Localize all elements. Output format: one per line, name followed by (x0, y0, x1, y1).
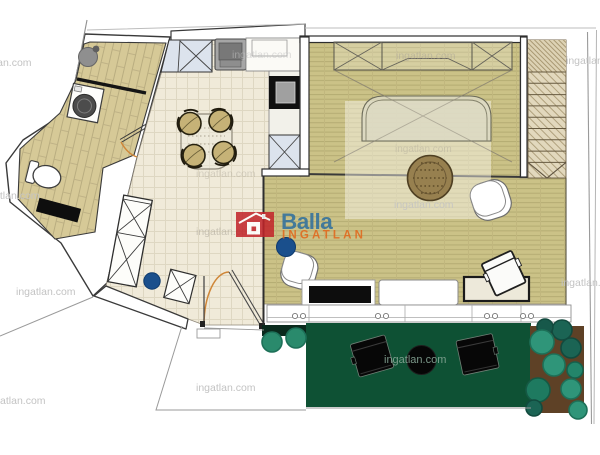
svg-text:ingatlan.com: ingatlan.com (384, 354, 446, 366)
svg-text:ingatlan.com: ingatlan.com (16, 286, 76, 298)
svg-text:ingatlan.com: ingatlan.com (396, 50, 456, 62)
svg-text:ingatlan.com: ingatlan.com (566, 55, 600, 67)
svg-text:ingatlan.com: ingatlan.com (395, 144, 452, 155)
svg-text:ingatlan.com: ingatlan.com (561, 277, 600, 289)
svg-text:ingatlan.com: ingatlan.com (0, 57, 32, 69)
svg-text:ingatlan.com: ingatlan.com (196, 382, 256, 394)
svg-text:INGATLAN: INGATLAN (282, 230, 366, 242)
svg-text:ingatlan.com: ingatlan.com (0, 190, 40, 202)
svg-text:ingatlan.com: ingatlan.com (196, 168, 256, 180)
svg-text:ingatlan.com: ingatlan.com (0, 395, 46, 407)
svg-text:ingatlan.com: ingatlan.com (232, 49, 292, 61)
svg-text:ingatlan.com: ingatlan.com (394, 199, 454, 211)
